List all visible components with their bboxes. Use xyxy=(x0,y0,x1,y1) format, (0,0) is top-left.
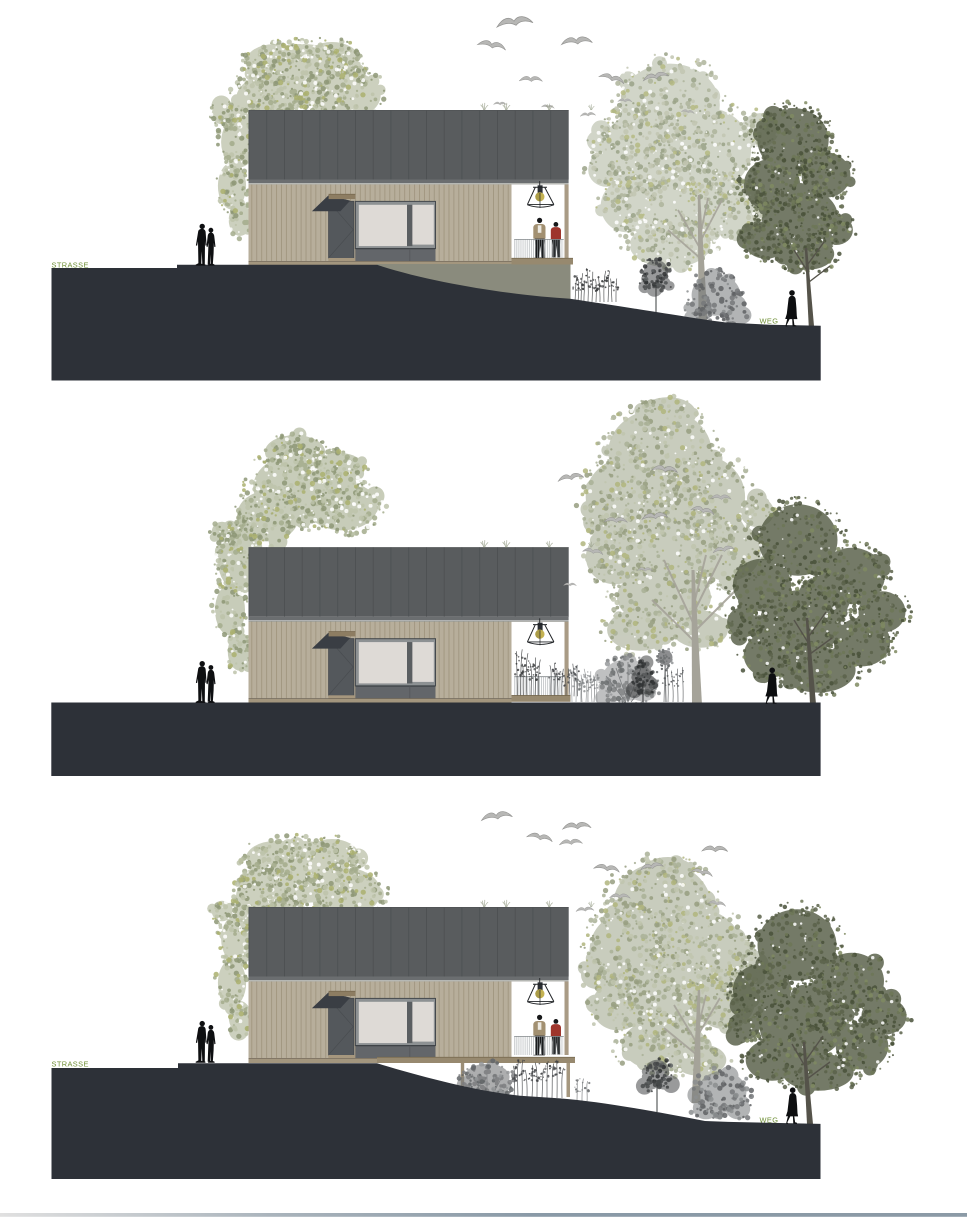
svg-text:WEG: WEG xyxy=(760,316,779,325)
svg-text:WEG: WEG xyxy=(760,1115,779,1124)
svg-text:STRASSE: STRASSE xyxy=(52,260,89,269)
svg-text:STRASSE: STRASSE xyxy=(52,1059,89,1068)
